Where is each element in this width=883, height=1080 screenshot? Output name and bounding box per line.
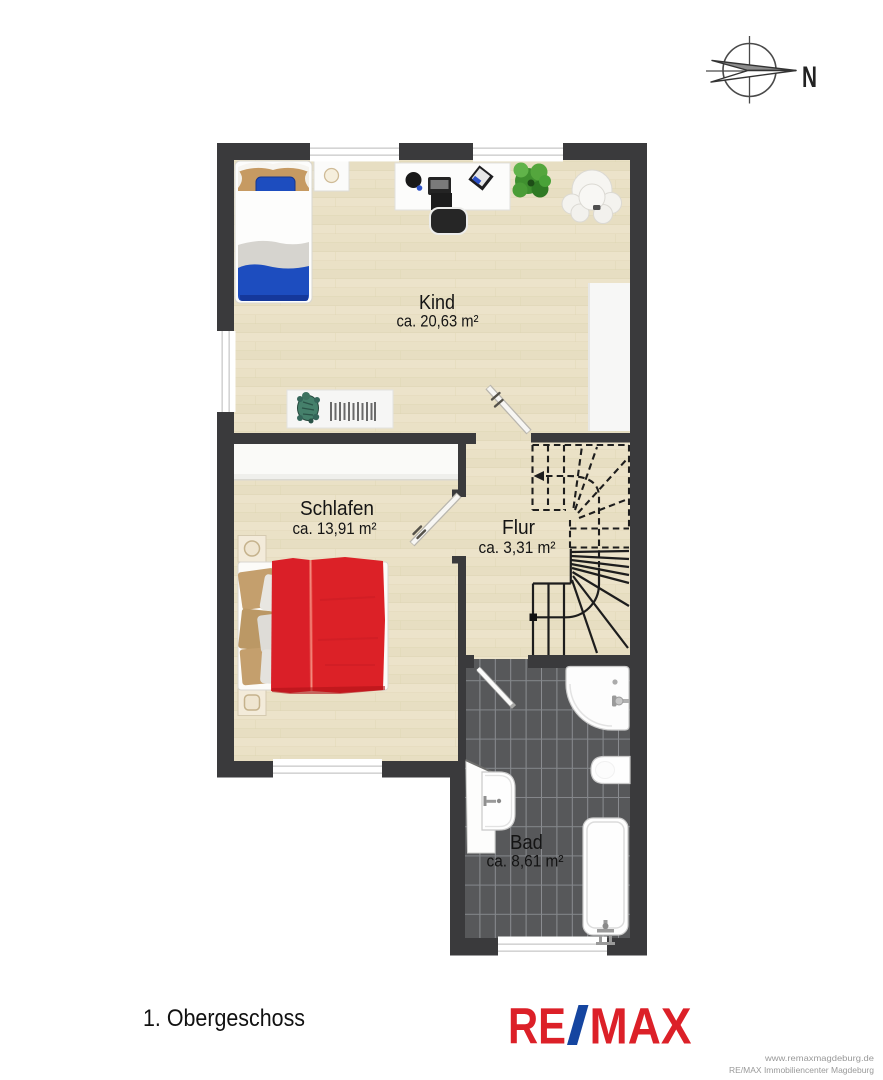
svg-text:www.remaxmagdeburg.de: www.remaxmagdeburg.de bbox=[764, 1053, 874, 1063]
svg-text:RE/MAX Immobiliencenter Magdeb: RE/MAX Immobiliencenter Magdeburg bbox=[729, 1065, 874, 1075]
svg-text:ca. 13,91 m²: ca. 13,91 m² bbox=[293, 519, 377, 538]
svg-text:Schlafen: Schlafen bbox=[300, 497, 374, 520]
svg-text:ca. 3,31 m²: ca. 3,31 m² bbox=[479, 538, 556, 557]
svg-text:N: N bbox=[802, 61, 817, 94]
svg-text:ca. 8,61 m²: ca. 8,61 m² bbox=[487, 852, 564, 871]
svg-text:RE: RE bbox=[508, 998, 566, 1055]
svg-text:ca. 20,63 m²: ca. 20,63 m² bbox=[397, 312, 479, 331]
svg-text:1. Obergeschoss: 1. Obergeschoss bbox=[143, 1005, 305, 1032]
svg-text:Flur: Flur bbox=[502, 516, 535, 539]
svg-text:MAX: MAX bbox=[590, 998, 692, 1055]
